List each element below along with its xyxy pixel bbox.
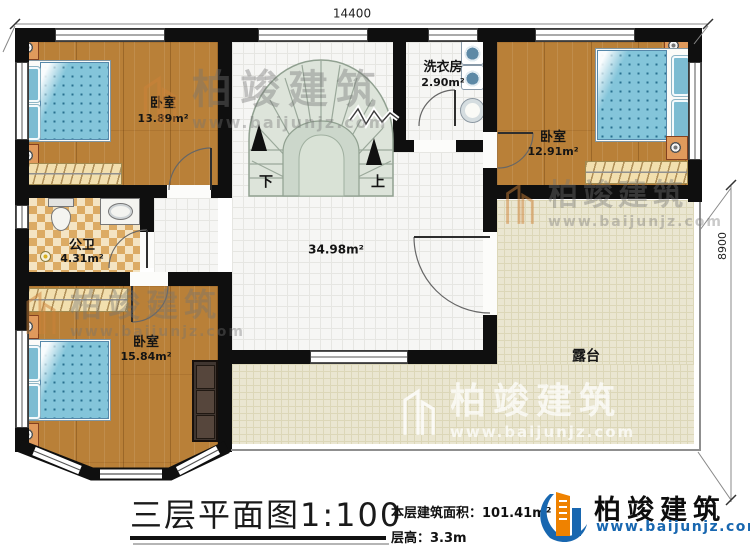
window-bedroom1-top [55,28,165,42]
wall-bedroom2-bottom [497,185,702,199]
mattress [40,341,109,419]
company-logo-url: www.baijunjz.com [596,519,750,535]
window-laundry-top [428,28,478,42]
room-name-bedroom-top-right: 卧室 [540,131,566,145]
sofa-cushion [196,390,215,414]
company-logo-icon [534,486,590,544]
sliding-door-hall-terrace [310,350,408,364]
terrace-floor-bottom [232,364,694,444]
room-name-laundry: 洗衣房 [423,61,462,75]
dimension-right-label: 8900 [716,232,729,260]
door-opening-bedroom2 [483,132,497,168]
room-area-laundry: 2.90m² [421,77,464,89]
plan-title: 三层平面图1:100 [130,490,402,536]
wall-bathroom-right [140,198,154,232]
wall-hall-right-mid [483,168,497,232]
door-opening-bedroom1 [167,185,211,198]
wall-bedroom3-right [218,286,232,452]
wall-corridor-bottom [15,272,232,286]
floor-drain-icon [40,251,51,262]
title-underline [130,536,386,540]
floor-height-line: 层高：3.3m [391,527,467,546]
sink-basin [108,203,133,220]
room-area-bedroom-top-right: 12.91m² [527,146,578,158]
washing-machine [461,40,484,65]
door-opening-bedroom3 [130,272,168,286]
door-opening-laundry [414,140,456,152]
wardrobe [585,161,688,184]
wall-bedroom1-right [218,28,232,198]
door-opening-terrace [483,232,497,315]
wardrobe [18,163,122,185]
floor-height-value: 3.3m [430,531,467,546]
window-bedroom2-right [688,62,702,160]
mattress [597,50,667,140]
bed [595,48,690,142]
mattress [40,62,109,140]
nightstand [666,136,688,160]
toilet-tank [48,198,74,207]
wall-hall-right-upper [483,28,497,132]
floor-area-line: 本层建筑面积：101.41m² [391,502,551,521]
window-bedroom2-top [535,28,635,42]
plan-scale: 1:100 [300,496,402,534]
floor-height-label: 层高： [391,531,430,546]
sofa-cushion [196,415,215,439]
vanity-counter [100,198,140,225]
room-area-bedroom-bottom-left: 15.84m² [120,351,171,363]
room-area-hall: 34.98m² [308,243,364,256]
floor-plan: 14400 8900 卧室 13.89m² 洗衣房 2.90m² 卧室 12.9… [0,0,750,552]
stairs-up-label: 上 [371,175,385,190]
window-bedroom3-left [15,330,29,428]
sofa-cushion [196,365,215,389]
plan-title-text: 三层平面图 [130,496,300,534]
company-logo: 柏竣建筑 www.baijunjz.com [534,486,744,546]
window-bathroom-left [15,205,29,229]
floor-area-label: 本层建筑面积： [391,506,482,521]
sofa [192,360,218,442]
wall-hall-bottom-right [408,350,497,364]
room-name-terrace: 露台 [572,349,600,364]
wall-hall-bottom-left [218,350,310,364]
room-area-bedroom-top-left: 13.89m² [137,113,188,125]
dimension-top-label: 14400 [333,7,371,20]
window-stairs-top [258,28,368,42]
room-name-bedroom-top-left: 卧室 [150,97,176,111]
stairs-down-label: 下 [259,175,273,190]
bed [18,60,111,142]
title-underline-shadow [133,543,389,545]
room-name-bedroom-bottom-left: 卧室 [133,336,159,350]
wall-laundry-left [393,28,406,152]
window-bedroom1-left [15,62,29,140]
door-opening-bathroom [140,232,154,268]
room-area-bathroom: 4.31m² [60,253,103,265]
bed [18,339,111,421]
wardrobe [18,288,128,312]
lamp-icon [669,141,682,154]
laundry-sink [460,98,485,123]
